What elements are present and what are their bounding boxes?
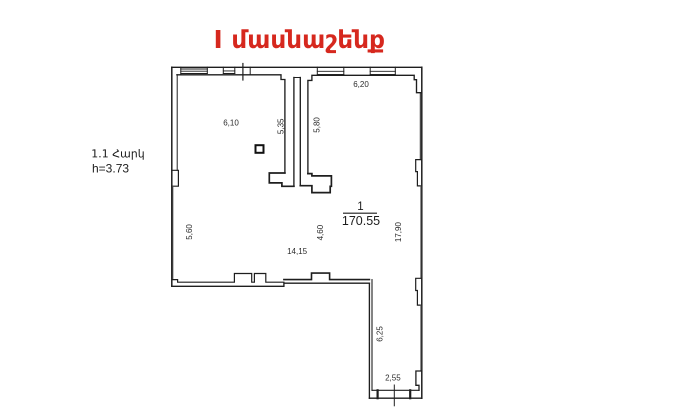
svg-text:2,55: 2,55	[385, 373, 401, 382]
svg-text:6,25: 6,25	[375, 326, 384, 342]
svg-text:5,35: 5,35	[277, 118, 286, 134]
svg-text:6,20: 6,20	[353, 80, 369, 89]
svg-text:5,60: 5,60	[185, 224, 194, 240]
svg-text:14,15: 14,15	[287, 247, 308, 256]
svg-text:17,90: 17,90	[394, 222, 403, 243]
svg-text:6,10: 6,10	[223, 118, 239, 127]
svg-text:5,80: 5,80	[313, 117, 322, 133]
svg-text:h=3.73: h=3.73	[92, 162, 129, 176]
svg-text:1: 1	[357, 201, 363, 213]
svg-text:4,60: 4,60	[316, 224, 325, 240]
svg-text:170.55: 170.55	[342, 214, 380, 228]
